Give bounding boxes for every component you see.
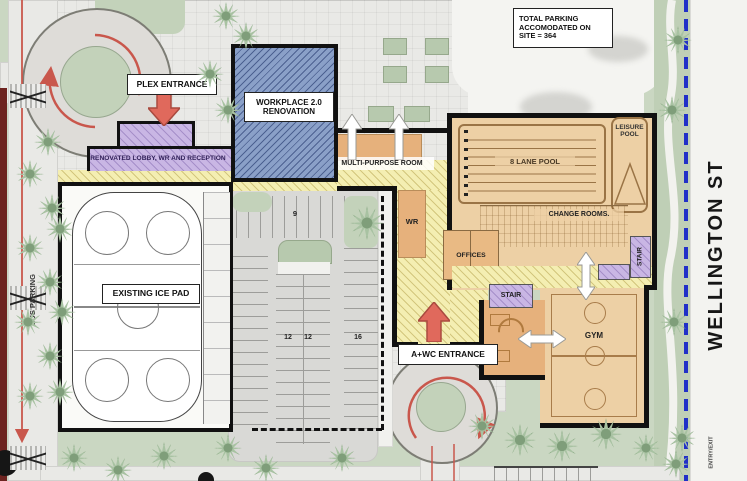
- faceoff-circle: [85, 358, 129, 402]
- change-rooms-label: CHANGE ROOMS.: [534, 209, 624, 221]
- ice-pad-label: EXISTING ICE PAD: [102, 284, 200, 304]
- faceoff-circle: [146, 358, 190, 402]
- court-key-south: [584, 388, 606, 410]
- planter: [425, 66, 449, 83]
- crosswalk-icon: [10, 84, 46, 108]
- wall: [392, 186, 397, 346]
- planter: [383, 38, 407, 55]
- stair-west-label: STAIR: [489, 290, 533, 302]
- gym-label: GYM: [574, 330, 614, 343]
- crosswalk-icon: [10, 446, 46, 470]
- total-parking-note: TOTAL PARKING ACCOMODATED ON SITE = 364: [513, 8, 613, 48]
- entrance-arrow-icon: [342, 114, 362, 160]
- wall: [337, 186, 397, 191]
- rink-line: [74, 350, 200, 351]
- tree-icon: [504, 424, 536, 456]
- planter: [425, 38, 449, 55]
- entrance-arrow-icon: [389, 114, 409, 160]
- court-key-north: [584, 302, 606, 324]
- stair-east-label: STAIR: [635, 232, 646, 282]
- stair-landing: [598, 264, 630, 280]
- pool-slide-icon: [613, 160, 647, 210]
- eight-lane-pool-label: 8 LANE POOL: [495, 156, 575, 168]
- parking-median-planter: [278, 240, 332, 264]
- parking-stalls-center-left: [276, 274, 304, 444]
- starting-blocks-icon: [464, 130, 468, 198]
- corridor-center: [233, 182, 337, 191]
- site-plan: WELLINGTON ST ENTRY/EXIT BUS PARKING 9 1…: [0, 0, 747, 481]
- ice-pad-rooms: [203, 192, 230, 424]
- offices-label: OFFICES: [445, 250, 497, 262]
- leisure-pool-label: LEISURE POOL: [611, 120, 648, 142]
- wall: [644, 285, 657, 290]
- corridor-arrow-icon: [518, 330, 566, 348]
- awc-entrance-label: A+WC ENTRANCE: [398, 344, 498, 365]
- corridor-arrow-icon: [577, 252, 595, 300]
- workplace-label: WORKPLACE 2.0 RENOVATION: [244, 92, 334, 122]
- parking-count-north: 9: [288, 208, 302, 220]
- wr-label: WR: [399, 216, 425, 228]
- property-line: [684, 0, 688, 481]
- parking-stalls-center-right: [303, 274, 330, 444]
- parking-count-left: 12: [280, 332, 296, 344]
- tree-icon: [546, 430, 578, 462]
- entry-exit-label: ENTRY/EXIT: [708, 423, 717, 481]
- parking-island: [232, 192, 272, 212]
- lobby-label: RENOVATED LOBBY, WR AND RECEPTION: [88, 147, 228, 170]
- parking-count-east: 16: [350, 332, 366, 344]
- tree-trunk-icon: [198, 472, 214, 481]
- planter: [383, 66, 407, 83]
- phase-line-horizontal: [252, 428, 382, 431]
- plex-entrance-arrow-icon: [148, 92, 180, 126]
- parking-stalls-west: [232, 256, 268, 430]
- parking-row-south: [494, 466, 598, 481]
- phase-line-vertical: [381, 196, 384, 430]
- parking-median-walk: [278, 262, 330, 274]
- faceoff-circle: [146, 211, 190, 255]
- parking-count-right: 12: [300, 332, 316, 344]
- wellington-street-label: WELLINGTON ST: [703, 165, 729, 345]
- faceoff-circle: [85, 211, 129, 255]
- court-center-circle: [585, 346, 605, 366]
- rink-line: [74, 264, 200, 265]
- awc-entrance-arrow-icon: [418, 302, 450, 342]
